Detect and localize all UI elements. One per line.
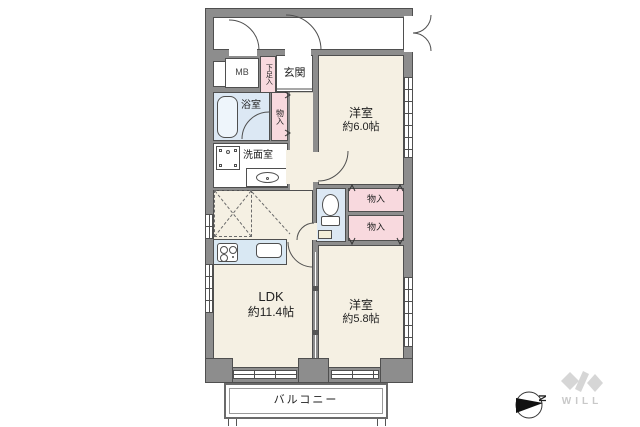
- door-arc-corridor-top-leaf: [413, 15, 431, 33]
- floor-plan: MB 下足入 玄関 浴室 物入 洗面室 洋室 約6.0帖: [0, 0, 640, 427]
- balcony-window-bedroom2: [331, 370, 379, 379]
- storage1-label: 物入: [367, 194, 385, 205]
- sliding-door-handle: [312, 286, 318, 291]
- room-washroom: 洗面室: [213, 143, 288, 188]
- sliding-door-handle: [312, 330, 318, 335]
- side-window-bedroom2: [404, 277, 413, 347]
- pillar: [205, 358, 233, 383]
- compass-north-letter: N: [534, 395, 547, 402]
- bathtub-icon: [217, 96, 238, 138]
- balcony-partition-mark: [236, 419, 237, 426]
- bedroom2-size: 約5.8帖: [342, 313, 379, 327]
- common-corridor: [213, 17, 404, 50]
- balcony-inner: バルコニー: [229, 388, 383, 414]
- room-toilet: [316, 188, 346, 242]
- stove-icon: [217, 243, 238, 262]
- toilet-door-opening: [312, 223, 317, 240]
- corridor-double-door-opening: [404, 16, 413, 52]
- entrance-label: 玄関: [284, 67, 306, 81]
- side-window-ldk-upper: [205, 214, 213, 239]
- toilet-tank-icon: [321, 216, 340, 226]
- meter-box-opening: [229, 48, 257, 56]
- room-storage1: 物入: [348, 188, 404, 212]
- bedroom1-size: 約6.0帖: [342, 121, 379, 135]
- room-hall-closet: 物入: [271, 92, 288, 141]
- room-entrance: 玄関: [276, 55, 313, 92]
- room-bedroom2: 洋室 約5.8帖: [318, 245, 404, 368]
- kitchen-sink-icon: [256, 243, 282, 258]
- will-logo-mark: [561, 371, 603, 392]
- room-meter-box: MB: [225, 58, 259, 88]
- washing-machine-icon: [216, 146, 240, 170]
- pillar: [380, 358, 413, 383]
- entrance-door-opening: [285, 48, 311, 57]
- toilet-step: [318, 230, 332, 239]
- balcony-partition-mark: [385, 419, 386, 426]
- pillar: [298, 358, 329, 383]
- door-arc-corridor-bottom-leaf: [413, 33, 431, 51]
- will-logo-text: WILL: [556, 396, 608, 409]
- room-storage2: 物入: [348, 215, 404, 241]
- room-shoe-cupboard: 下足入: [260, 56, 276, 93]
- balcony-partition-mark: [377, 419, 378, 426]
- vanity-sink-icon: [246, 168, 288, 187]
- ldk-size: 約11.4帖: [230, 305, 312, 320]
- bedroom1-door-opening: [312, 152, 320, 182]
- bedroom1-label: 洋室: [349, 106, 373, 121]
- shoe-cupboard-label: 下足入: [264, 64, 273, 85]
- hall-closet-label: 物入: [275, 109, 285, 125]
- storage2-label: 物入: [367, 222, 385, 233]
- room-bedroom1: 洋室 約6.0帖: [318, 55, 404, 185]
- balcony-window-ldk: [233, 370, 297, 379]
- bathroom-label: 浴室: [241, 100, 261, 113]
- washroom-label: 洗面室: [243, 150, 273, 163]
- side-window-ldk-lower: [205, 264, 213, 313]
- bedroom2-label: 洋室: [349, 298, 373, 313]
- kitchen-counter: [213, 239, 287, 265]
- room-bathroom: 浴室: [213, 92, 270, 141]
- washroom-door-opening: [286, 150, 291, 184]
- dashed-storage-space: [214, 190, 252, 237]
- side-window-bedroom1: [404, 77, 413, 158]
- balcony: バルコニー: [224, 383, 388, 419]
- ldk-label-block: LDK 約11.4帖: [214, 289, 312, 320]
- ldk-label: LDK: [230, 289, 312, 305]
- toilet-icon: [322, 194, 339, 216]
- balcony-partition-mark: [228, 419, 229, 426]
- balcony-label: バルコニー: [274, 394, 339, 408]
- meter-box-label: MB: [235, 67, 249, 78]
- sliding-door-track: [315, 252, 316, 364]
